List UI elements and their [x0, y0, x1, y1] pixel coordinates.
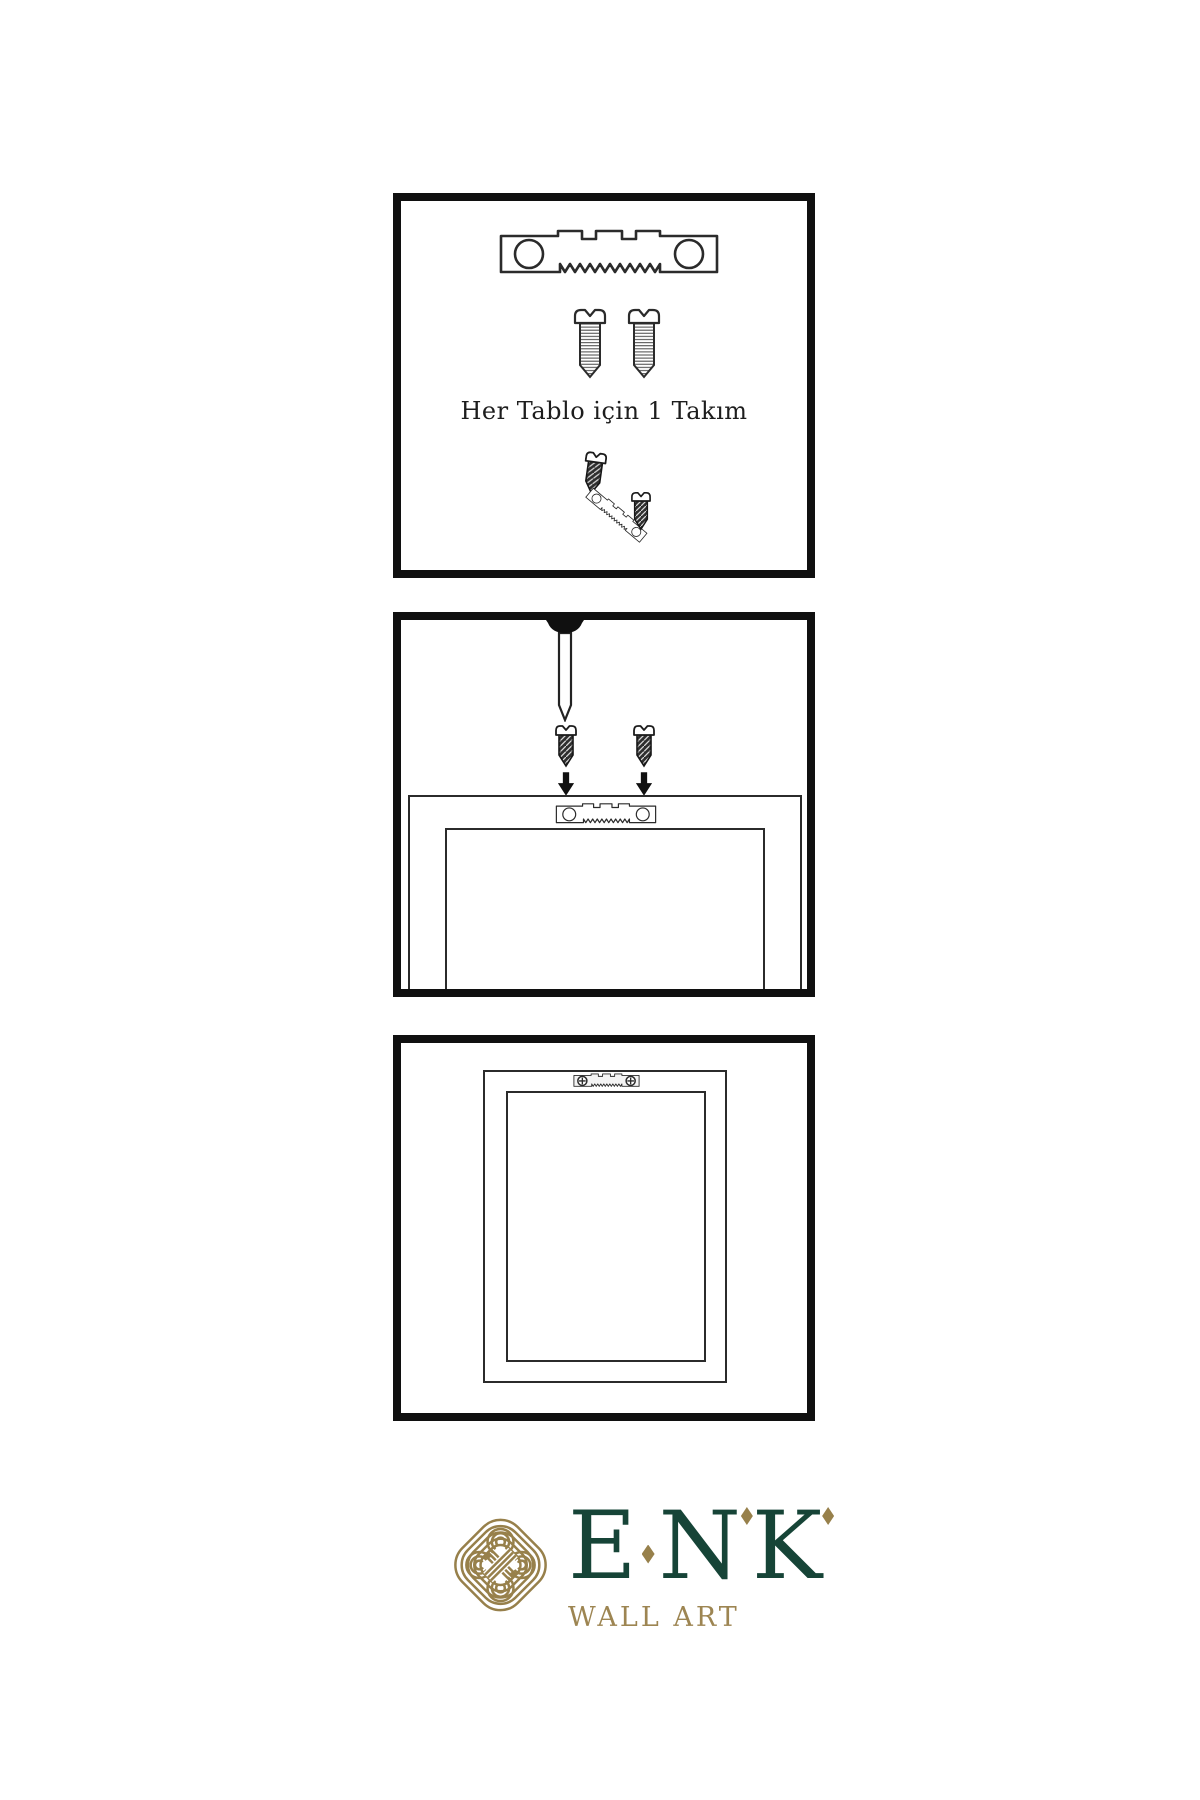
- diamond-icon: [822, 1507, 834, 1525]
- brand-letter: K: [752, 1505, 823, 1589]
- brand-letter: E: [568, 1505, 638, 1589]
- screw-icon: [633, 724, 655, 768]
- mounted-hanger-icon: [573, 1070, 640, 1090]
- sawtooth-hanger-icon: [555, 800, 657, 826]
- picture-frame-inner: [445, 828, 765, 989]
- diamond-icon: [642, 1545, 655, 1564]
- screw-icon: [631, 491, 651, 531]
- step-1-panel: Her Tablo için 1 Takım: [393, 193, 815, 578]
- brand-letter: N: [659, 1505, 742, 1589]
- screw-icon: [573, 307, 607, 379]
- step-2-panel: [393, 612, 815, 997]
- screw-icon: [555, 724, 577, 768]
- page-background: Her Tablo için 1 Takım E N K: [0, 0, 1200, 1800]
- screw-icon: [627, 307, 661, 379]
- brand-subtitle: WALL ART: [568, 1602, 823, 1633]
- brand-text: E N K WALL ART: [568, 1505, 823, 1633]
- step-3-panel: [393, 1035, 815, 1421]
- picture-frame-inner: [506, 1091, 706, 1362]
- nail-icon: [545, 620, 585, 722]
- hanger-assembly-illustration: [569, 449, 679, 569]
- brand-name: E N K: [568, 1505, 823, 1589]
- knot-logo-icon: [438, 1497, 563, 1633]
- sawtooth-hanger-icon: [498, 223, 720, 279]
- step-1-caption: Her Tablo için 1 Takım: [401, 397, 807, 425]
- arrow-down-icon: [635, 772, 653, 796]
- brand-logo: E N K WALL ART: [438, 1497, 798, 1667]
- arrow-down-icon: [557, 772, 575, 796]
